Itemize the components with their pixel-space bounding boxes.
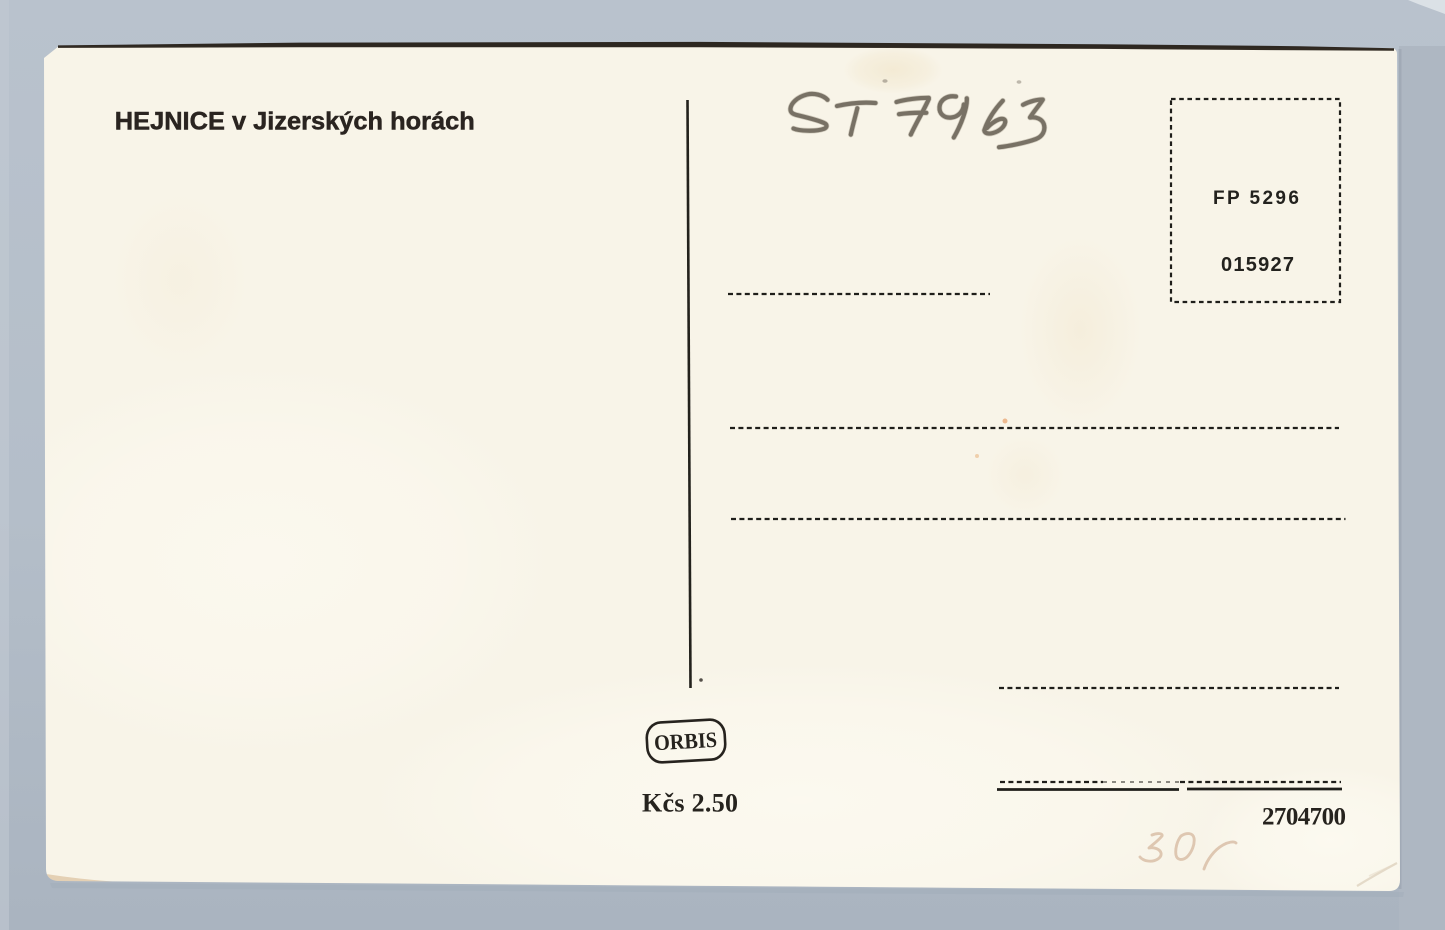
svg-text:HEJNICE v Jizerských horách: HEJNICE v Jizerských horách <box>115 108 475 136</box>
svg-text:2704700: 2704700 <box>1262 804 1346 831</box>
svg-text:ORBIS: ORBIS <box>653 727 717 755</box>
svg-text:015927: 015927 <box>1221 254 1294 276</box>
svg-text:Kčs 2.50: Kčs 2.50 <box>642 789 738 818</box>
